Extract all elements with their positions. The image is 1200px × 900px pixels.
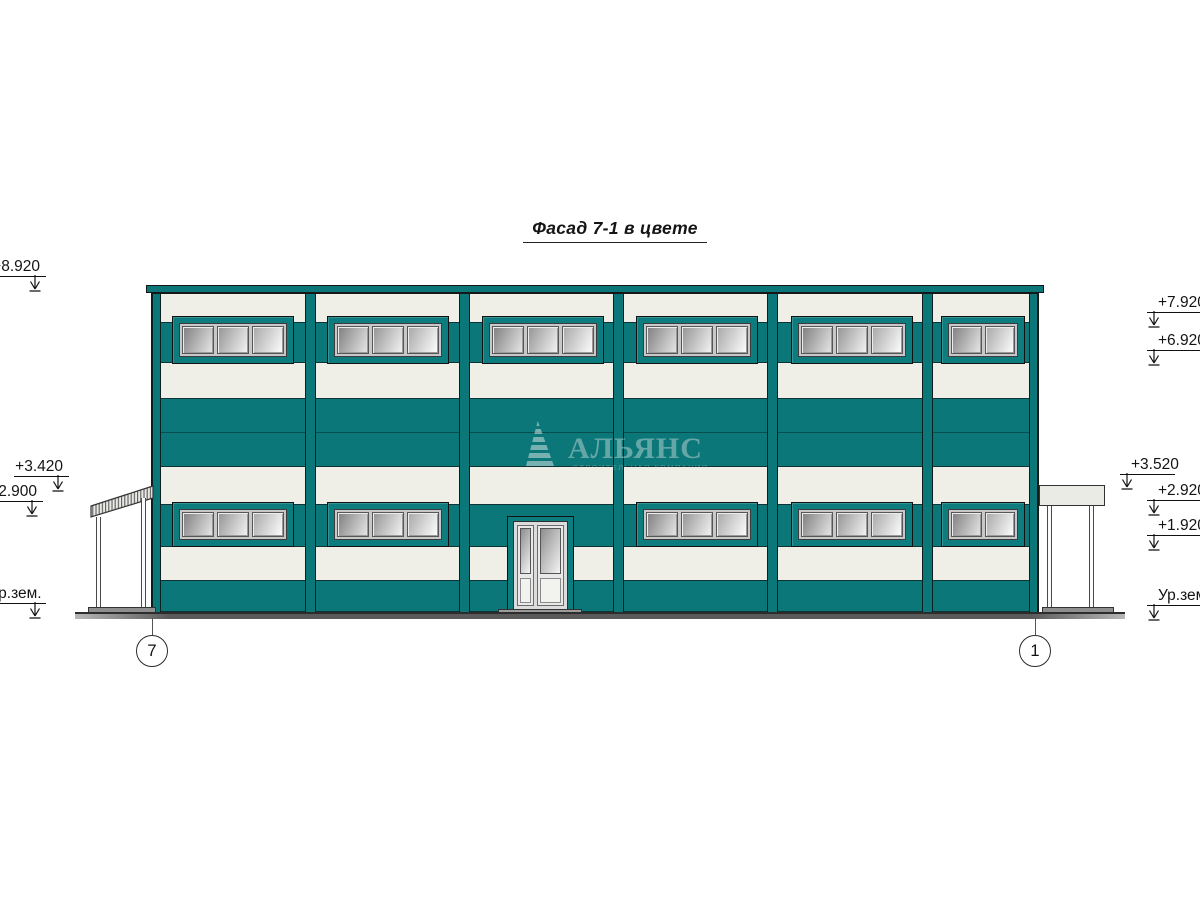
window-upper-1 [172,316,294,364]
pilaster [459,294,470,612]
canopy-right-post [1047,506,1052,608]
pilaster [305,294,316,612]
elevation-arrow-icon [1147,499,1161,517]
door-glass [520,528,531,574]
elevation-arrow-icon [51,475,65,493]
door-panel [540,578,561,603]
window-upper-4 [636,316,758,364]
door-leaf-wide [537,525,564,606]
pilaster [1029,294,1038,612]
drawing-title-wrap: Фасад 7-1 в цвете [450,218,780,243]
watermark-brand: АЛЬЯНС [568,434,703,464]
canopy-right-post [1089,506,1094,608]
pilaster [922,294,933,612]
axis-bubble-7: 7 [136,635,168,667]
entry-door [507,516,574,613]
elevation-arrow-icon [1147,534,1161,552]
window-lower-3 [636,502,758,547]
elevation-marker-right-ground: Ур.зем. [1147,587,1200,606]
door-panel [520,578,531,603]
pilaster [152,294,161,612]
axis-leader-7 [152,618,153,635]
axis-label: 7 [147,642,156,661]
elevation-arrow-icon [1147,349,1161,367]
door-glass [540,528,561,574]
elevation-arrow-icon [28,602,42,620]
window-lower-4 [791,502,913,547]
drawing-title: Фасад 7-1 в цвете [523,218,706,243]
window-upper-3 [482,316,604,364]
pilaster [767,294,778,612]
axis-label: 1 [1030,642,1039,661]
elevation-arrow-icon [1147,311,1161,329]
elevation-marker-right-1920: +1.920 [1147,517,1200,536]
elevation-marker-left-ground: Ур.зем. [0,585,46,604]
elevation-arrow-icon [25,500,39,518]
elevation-marker-left-8920: +8.920 [0,258,46,277]
ground-line [75,612,1125,619]
panel-band-white [152,467,1038,504]
canopy-left-post [141,498,146,608]
door-leaf-narrow [517,525,534,606]
canopy-right-fascia [1039,485,1105,506]
elevation-arrow-icon [1120,473,1134,491]
elevation-arrow-icon [28,275,42,293]
elevation-arrow-icon [1147,604,1161,622]
panel-band-white [152,363,1038,398]
elevation-marker-left-2900: +2.900 [0,483,43,502]
panel-band-teal [152,580,1038,612]
window-lower-2 [327,502,449,547]
canopy-left-post [96,517,101,608]
window-upper-5 [791,316,913,364]
axis-leader-1 [1035,618,1036,635]
elevation-marker-left-3420: +3.420 [14,458,69,477]
panel-band-white [152,547,1038,580]
axis-bubble-1: 1 [1019,635,1051,667]
elevation-marker-right-7920: +7.920 [1147,294,1200,313]
window-upper-6 [941,316,1025,364]
elevation-marker-right-2920: +2.920 [1147,482,1200,501]
elevation-marker-right-3520: +3.520 [1120,456,1175,475]
window-upper-2 [327,316,449,364]
parapet-cap [146,285,1044,293]
window-lower-5 [941,502,1025,547]
watermark-tagline: СТРОИТЕЛЬНАЯ КОМПАНИЯ [573,463,695,472]
window-lower-1 [172,502,294,547]
facade-drawing: Фасад 7-1 в цвете [0,0,1200,900]
elevation-marker-right-6920: +6.920 [1147,332,1200,351]
